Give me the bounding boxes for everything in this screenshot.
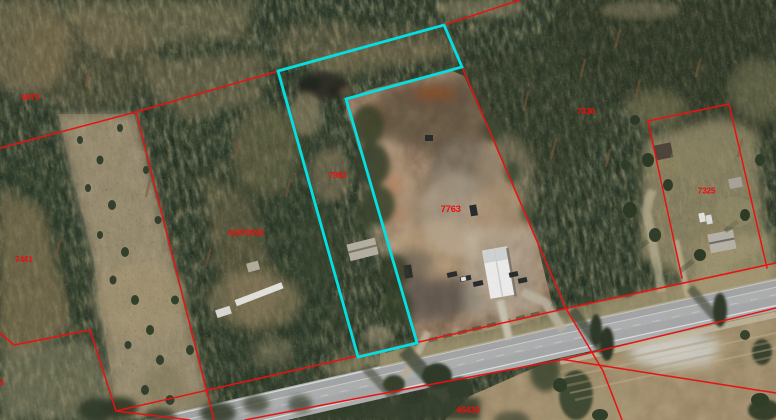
svg-text:46430: 46430 [456, 405, 480, 415]
svg-text:7441: 7441 [15, 254, 33, 264]
svg-text:65070695: 65070695 [228, 228, 264, 238]
svg-text:7325: 7325 [698, 186, 716, 196]
svg-text:7763: 7763 [441, 204, 461, 215]
svg-text:6873: 6873 [22, 92, 40, 102]
svg-text:3: 3 [0, 377, 4, 387]
svg-text:7336: 7336 [577, 106, 595, 116]
svg-text:7953: 7953 [329, 170, 347, 180]
